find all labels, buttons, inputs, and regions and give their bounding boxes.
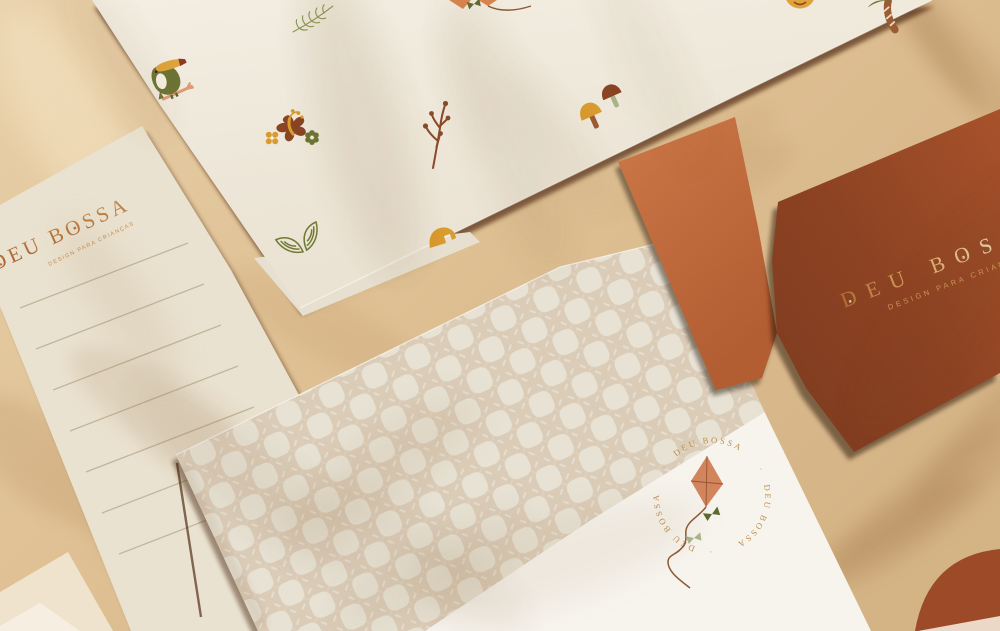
svg-text:·: · [707, 547, 713, 557]
